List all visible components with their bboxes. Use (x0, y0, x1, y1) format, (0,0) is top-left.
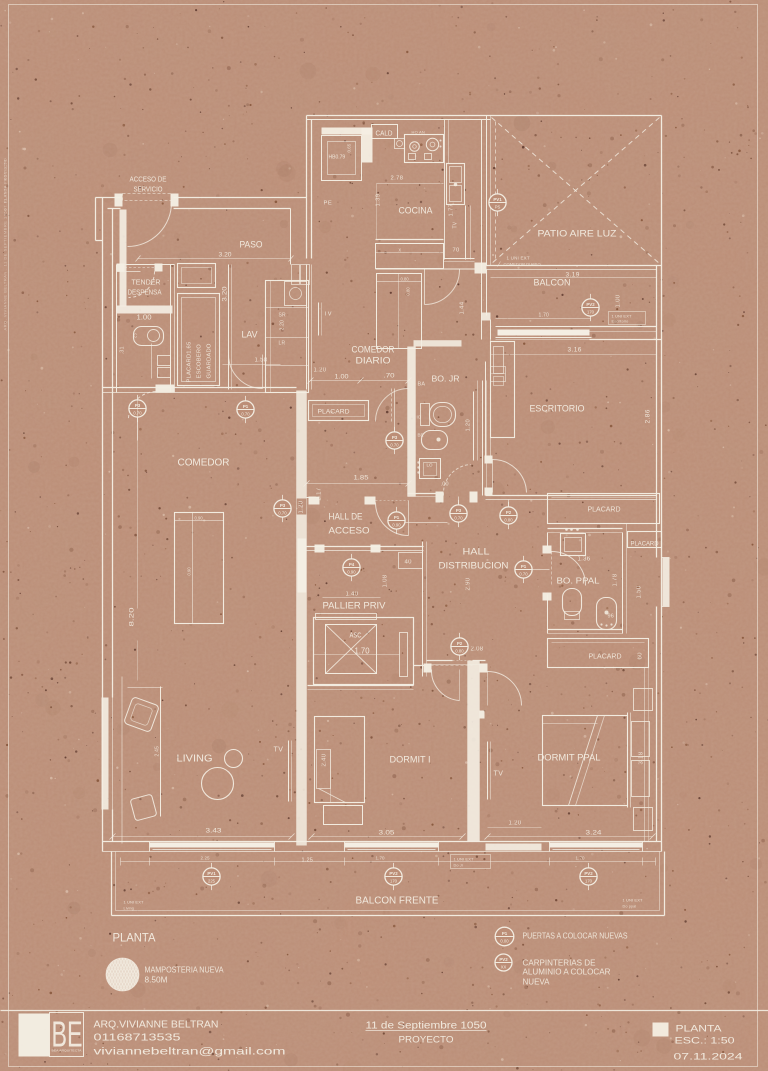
svg-text:ESCOBERO: ESCOBERO (197, 344, 203, 379)
svg-text:PROYECTO: PROYECTO (399, 1035, 454, 1046)
svg-text:2.86: 2.86 (645, 409, 652, 423)
svg-text:1 UNI EXT: 1 UNI EXT (623, 898, 643, 903)
svg-text:0.70: 0.70 (278, 511, 287, 516)
svg-text:70: 70 (453, 248, 460, 254)
svg-text:07.11.2024: 07.11.2024 (674, 1052, 743, 1063)
svg-text:PASO: PASO (240, 240, 263, 251)
svg-text:P1: P1 (394, 515, 400, 520)
svg-text:P2: P2 (457, 641, 463, 646)
svg-text:P1: P1 (243, 404, 249, 409)
svg-text:LIVING: LIVING (177, 753, 213, 765)
svg-text:Do ppal: Do ppal (623, 905, 637, 909)
svg-text:3.24: 3.24 (586, 830, 602, 837)
svg-text:PLACARD: PLACARD (589, 652, 623, 661)
svg-text:07.11.2024 PROYECTO: 07.11.2024 PROYECTO (3, 158, 8, 211)
svg-text:1.50: 1.50 (637, 585, 643, 598)
svg-text:1 UNI EXT: 1 UNI EXT (454, 857, 474, 862)
svg-text:TENDER: TENDER (132, 278, 161, 287)
svg-text:1 UNI EXT: 1 UNI EXT (124, 900, 144, 905)
svg-text:60: 60 (638, 652, 644, 660)
svg-text:0.80: 0.80 (504, 518, 513, 523)
svg-text:1.20: 1.20 (299, 500, 305, 513)
svg-text:ARQ.VIVIANNE BELTRAN: ARQ.VIVIANNE BELTRAN (94, 1019, 219, 1031)
svg-text:CARPINTERIAS DE: CARPINTERIAS DE (523, 959, 596, 968)
svg-text:COMEDOR DIARIO: COMEDOR DIARIO (504, 262, 541, 267)
svg-text:GUARDADO: GUARDADO (207, 343, 213, 378)
svg-text:P1: P1 (502, 931, 508, 936)
svg-text:P2: P2 (506, 510, 512, 515)
svg-text:.31: .31 (120, 346, 126, 354)
svg-text:P4: P4 (349, 562, 355, 567)
svg-text:BE: BE (418, 433, 424, 438)
svg-text:1.00: 1.00 (616, 294, 622, 307)
svg-text:8.20: 8.20 (129, 607, 136, 626)
svg-text:LAV: LAV (242, 330, 259, 341)
svg-text:2.45: 2.45 (155, 746, 161, 757)
svg-text:LO: LO (427, 463, 434, 468)
svg-text:TV: TV (324, 312, 332, 318)
svg-text:ESC.: 1:50: ESC.: 1:50 (675, 1036, 735, 1047)
svg-text:0.90: 0.90 (187, 567, 192, 576)
svg-text:1.20: 1.20 (314, 368, 327, 374)
svg-text:ALUMINIO A COLOCAR: ALUMINIO A COLOCAR (523, 968, 611, 977)
svg-text:0.90: 0.90 (392, 523, 401, 528)
svg-text:PLACARD1.65: PLACARD1.65 (187, 342, 193, 383)
svg-text:BALCON FRENTE: BALCON FRENTE (356, 896, 439, 907)
svg-text:PS: PS (495, 205, 501, 210)
svg-text:PATIO AIRE LUZ: PATIO AIRE LUZ (538, 229, 617, 240)
svg-text:DESPENSA: DESPENSA (128, 288, 162, 297)
svg-text:PV1: PV1 (493, 197, 502, 202)
svg-text:225: 225 (208, 879, 216, 884)
svg-text:PV2: PV2 (389, 871, 398, 876)
svg-text:1.70: 1.70 (355, 647, 371, 656)
svg-text:P1: P1 (521, 564, 527, 569)
svg-text:01168713535: 01168713535 (94, 1032, 181, 1044)
svg-text:PLANTA: PLANTA (676, 1024, 723, 1035)
svg-text:3.43: 3.43 (206, 828, 222, 835)
svg-text:1 UNI EXT: 1 UNI EXT (507, 256, 530, 261)
svg-text:PV2: PV2 (584, 871, 593, 876)
svg-text:XX: XX (501, 965, 507, 970)
svg-text:PV2: PV2 (499, 957, 508, 962)
svg-text:1.58: 1.58 (255, 358, 268, 364)
svg-text:SR: SR (279, 313, 287, 319)
svg-text:BEA ARQUITECTA: BEA ARQUITECTA (52, 1049, 82, 1053)
svg-text:3.20: 3.20 (222, 286, 229, 301)
svg-text:ACCESO DE: ACCESO DE (130, 175, 167, 184)
svg-text:.70: .70 (384, 373, 396, 380)
svg-text:96: 96 (608, 614, 615, 620)
svg-text:1.08: 1.08 (383, 574, 389, 587)
svg-text:BALCON: BALCON (534, 278, 571, 288)
svg-text:1.70: 1.70 (376, 856, 386, 861)
svg-text:DISTRIBUCION: DISTRIBUCION (439, 561, 509, 571)
svg-text:ACCESO: ACCESO (329, 526, 370, 536)
svg-text:0.70: 0.70 (390, 443, 399, 448)
svg-text:0.70: 0.70 (241, 412, 250, 417)
svg-text:DORMIT I: DORMIT I (390, 755, 431, 766)
svg-text:1.20: 1.20 (466, 419, 472, 431)
svg-text:0.80: 0.80 (401, 277, 410, 282)
svg-text:1.44: 1.44 (460, 301, 466, 314)
svg-text:0.80: 0.80 (406, 287, 411, 296)
svg-text:1 UNI EXT: 1 UNI EXT (612, 314, 632, 319)
svg-text:HALL DE: HALL DE (329, 512, 363, 522)
svg-text:1.20: 1.20 (509, 821, 522, 827)
svg-text:SERVICIO: SERVICIO (134, 185, 163, 194)
svg-text:3.16: 3.16 (568, 347, 582, 354)
svg-text:TV: TV (274, 747, 284, 754)
svg-text:170: 170 (585, 879, 593, 884)
svg-text:2.08: 2.08 (471, 647, 484, 653)
svg-text:2.25: 2.25 (201, 856, 211, 861)
svg-text:11 de Septiembre 1050: 11 de Septiembre 1050 (366, 1021, 488, 1032)
svg-text:COMEDOR: COMEDOR (178, 457, 230, 469)
svg-text:170: 170 (390, 879, 398, 884)
svg-text:2.20: 2.20 (280, 320, 286, 331)
svg-text:P3: P3 (392, 435, 398, 440)
svg-text:1.36: 1.36 (578, 557, 591, 563)
svg-text:2.90: 2.90 (466, 577, 472, 590)
svg-text:170: 170 (587, 310, 595, 315)
svg-text:P3: P3 (456, 508, 462, 513)
svg-text:2.40: 2.40 (322, 753, 328, 766)
svg-text:Do Jr: Do Jr (454, 864, 464, 868)
svg-text:1.77: 1.77 (449, 204, 455, 217)
svg-text:PE: PE (324, 201, 333, 207)
svg-text:PLACARD: PLACARD (588, 505, 622, 514)
svg-text:8.50M: 8.50M (145, 976, 168, 985)
svg-text:C: C (134, 334, 138, 340)
svg-text:PV2: PV2 (586, 302, 595, 307)
svg-text:3.05: 3.05 (379, 830, 395, 837)
svg-text:1.00: 1.00 (335, 374, 350, 381)
svg-text:1.25: 1.25 (302, 858, 314, 864)
svg-text:0.00: 0.00 (500, 939, 509, 944)
svg-text:TV: TV (494, 771, 504, 778)
svg-text:HALL: HALL (463, 547, 490, 557)
svg-text:LR: LR (279, 341, 286, 347)
svg-text:3.20: 3.20 (219, 252, 232, 259)
svg-text:PLACARD: PLACARD (631, 541, 659, 548)
svg-text:NUEVA: NUEVA (523, 978, 551, 987)
svg-text:CALD: CALD (376, 131, 393, 138)
svg-text:0.65: 0.65 (347, 143, 352, 152)
svg-text:MAMPOSTERIA NUEVA: MAMPOSTERIA NUEVA (145, 966, 225, 975)
svg-text:PALLIER PRIV: PALLIER PRIV (323, 601, 386, 611)
svg-text:ASC: ASC (350, 633, 362, 640)
svg-text:0.70: 0.70 (519, 572, 528, 577)
svg-text:viviannebeltran@gmail.com: viviannebeltran@gmail.com (94, 1046, 286, 1058)
svg-text:DIARIO: DIARIO (356, 356, 391, 366)
svg-text:HB0.79: HB0.79 (329, 155, 346, 161)
svg-text:BA: BA (418, 382, 426, 388)
svg-text:PLACARD: PLACARD (318, 409, 350, 416)
svg-text:1.85: 1.85 (354, 475, 369, 482)
svg-text:BO. JR: BO. JR (432, 374, 460, 384)
svg-text:COMEDOR: COMEDOR (352, 345, 395, 355)
svg-text:TV: TV (453, 221, 459, 228)
svg-text:0.80: 0.80 (455, 649, 464, 654)
svg-text:ESCRITORIO: ESCRITORIO (530, 404, 585, 415)
svg-text:.00: .00 (441, 482, 449, 488)
svg-text:40: 40 (405, 560, 413, 566)
svg-text:IO: IO (417, 415, 422, 420)
svg-text:Escritorio: Escritorio (612, 320, 629, 324)
svg-text:1.40: 1.40 (346, 592, 359, 598)
svg-text:1.78: 1.78 (613, 573, 619, 586)
svg-text:1.70: 1.70 (539, 313, 550, 319)
svg-text:P3: P3 (280, 503, 286, 508)
svg-text:1.70: 1.70 (576, 856, 586, 861)
svg-text:0.70: 0.70 (454, 516, 463, 521)
svg-text:PLANTA: PLANTA (113, 933, 156, 945)
svg-text:PV1: PV1 (207, 871, 216, 876)
svg-text:HO AN: HO AN (412, 130, 425, 135)
svg-text:PUERTAS A COLOCAR NUEVAS: PUERTAS A COLOCAR NUEVAS (523, 932, 628, 941)
svg-text:2.78: 2.78 (391, 176, 404, 182)
svg-text:1.00: 1.00 (137, 315, 152, 322)
svg-text:Living: Living (124, 907, 135, 911)
svg-text:0.90: 0.90 (195, 516, 204, 521)
svg-text:0.90: 0.90 (347, 570, 356, 575)
svg-text:3.18: 3.18 (639, 751, 645, 764)
svg-text:COCINA: COCINA (399, 206, 434, 217)
svg-text:BO. PPAL: BO. PPAL (557, 576, 600, 586)
